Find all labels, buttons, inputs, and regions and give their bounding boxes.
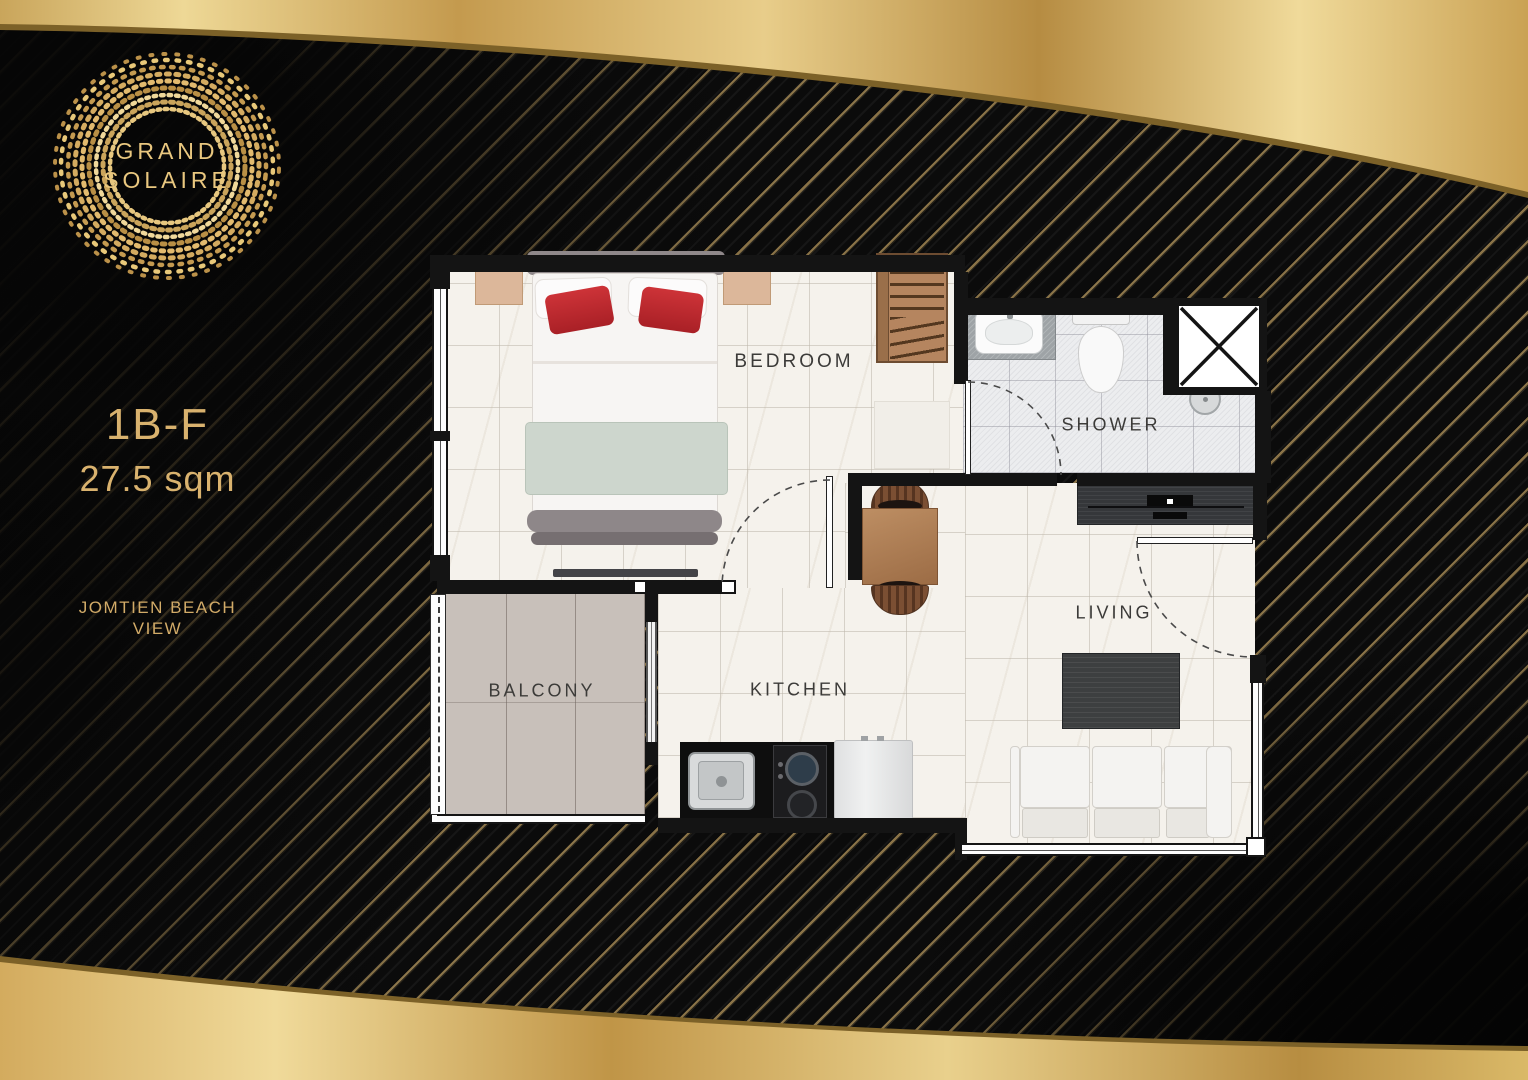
room-label-bedroom: BEDROOM	[734, 351, 853, 373]
gold-band-bottom	[0, 950, 1528, 1080]
bedroom-door-swing	[722, 480, 830, 587]
plan-overlay	[430, 243, 1271, 863]
room-label-living: LIVING	[1075, 603, 1152, 624]
unit-view-line1: JOMTIEN BEACH	[55, 597, 260, 618]
unit-view-line2: VIEW	[55, 618, 260, 639]
bathroom-door-swing	[968, 382, 1061, 475]
logo-text-line2: SOLAIRE	[103, 166, 231, 195]
unit-area: 27.5 sqm	[55, 458, 260, 500]
brand-logo: GRAND SOLAIRE	[52, 50, 282, 282]
logo-text-line1: GRAND	[115, 137, 218, 166]
unit-code: 1B-F	[55, 400, 260, 450]
floor-plan: BEDROOM SHOWER LIVING KITCHEN BALCONY	[430, 243, 1271, 863]
room-label-shower: SHOWER	[1062, 415, 1161, 436]
room-label-kitchen: KITCHEN	[750, 680, 850, 701]
room-label-balcony: BALCONY	[488, 681, 595, 702]
unit-view: JOMTIEN BEACH VIEW	[55, 597, 260, 640]
entrance-door-swing	[1137, 541, 1253, 657]
poster-canvas: GRAND SOLAIRE 1B-F 27.5 sqm JOMTIEN BEAC…	[0, 0, 1528, 1080]
